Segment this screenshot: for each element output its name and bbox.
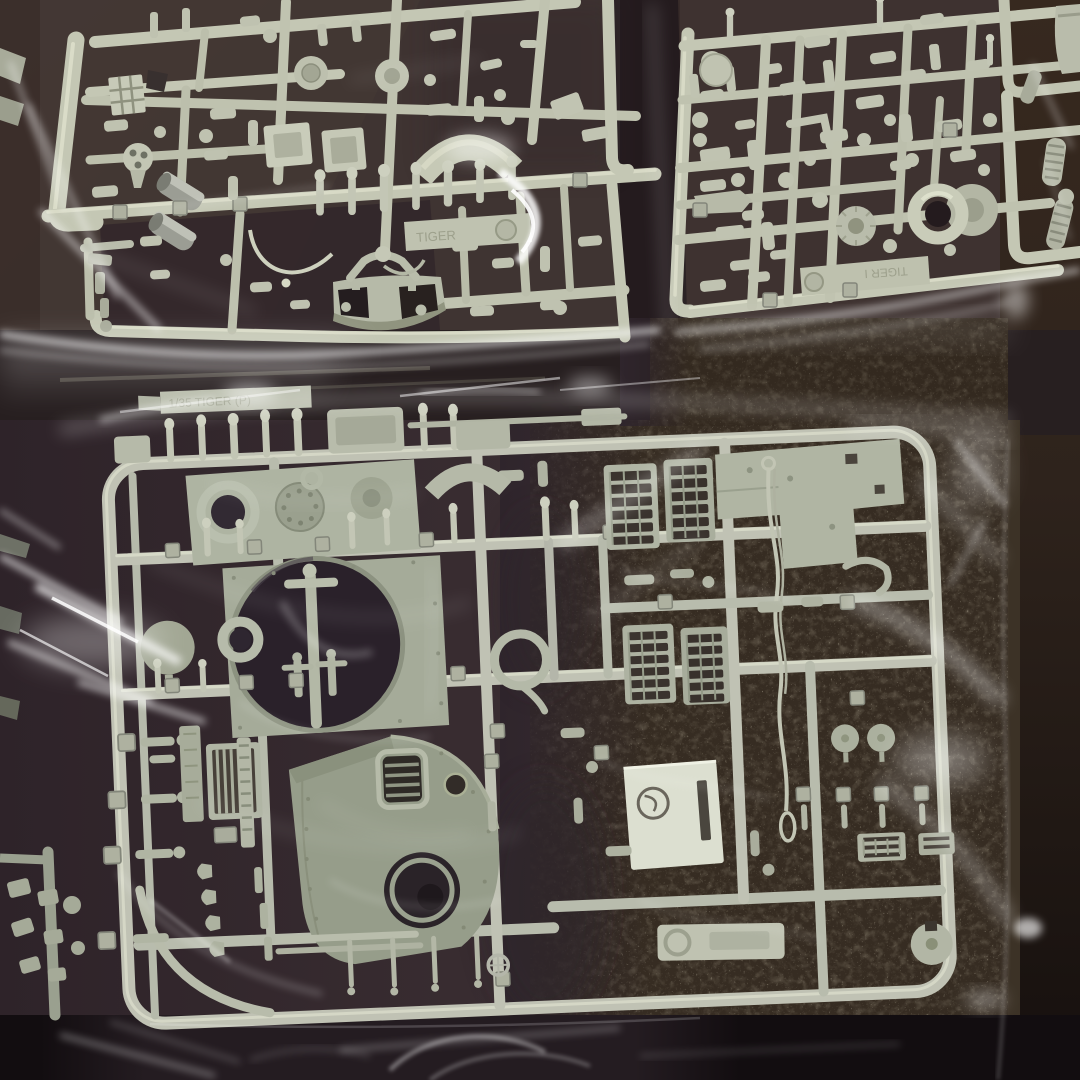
svg-text:TIGER: TIGER: [416, 227, 457, 245]
